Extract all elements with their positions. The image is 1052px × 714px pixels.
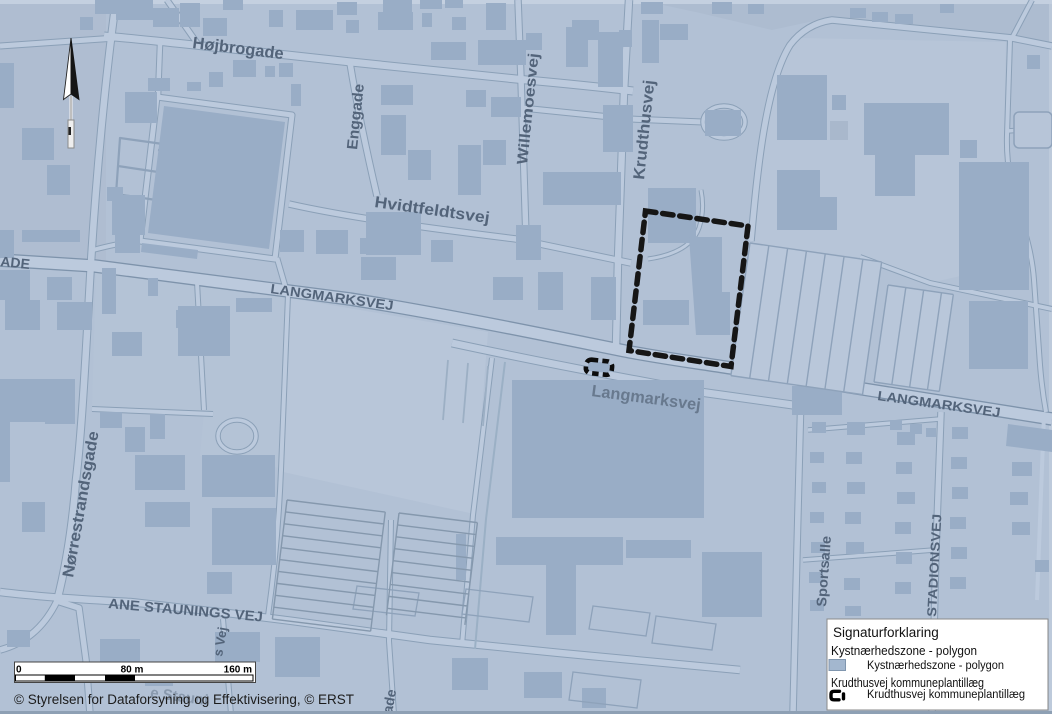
- svg-text:Kystnærhedszone - polygon: Kystnærhedszone - polygon: [831, 644, 977, 658]
- svg-text:0: 0: [16, 665, 22, 676]
- svg-text:Kystnærhedszone - polygon: Kystnærhedszone - polygon: [867, 660, 1004, 672]
- svg-text:Signaturforklaring: Signaturforklaring: [833, 625, 939, 640]
- svg-text:80 m: 80 m: [121, 665, 144, 676]
- svg-text:Krudthusvej kommuneplantillæg: Krudthusvej kommuneplantillæg: [831, 676, 984, 690]
- svg-text:ADE: ADE: [0, 253, 31, 272]
- svg-text:© Styrelsen for Dataforsyning: © Styrelsen for Dataforsyning og Effekti…: [14, 692, 354, 707]
- svg-text:160 m: 160 m: [224, 665, 252, 676]
- svg-text:Krudthusvej kommuneplantillæg: Krudthusvej kommuneplantillæg: [867, 689, 1025, 701]
